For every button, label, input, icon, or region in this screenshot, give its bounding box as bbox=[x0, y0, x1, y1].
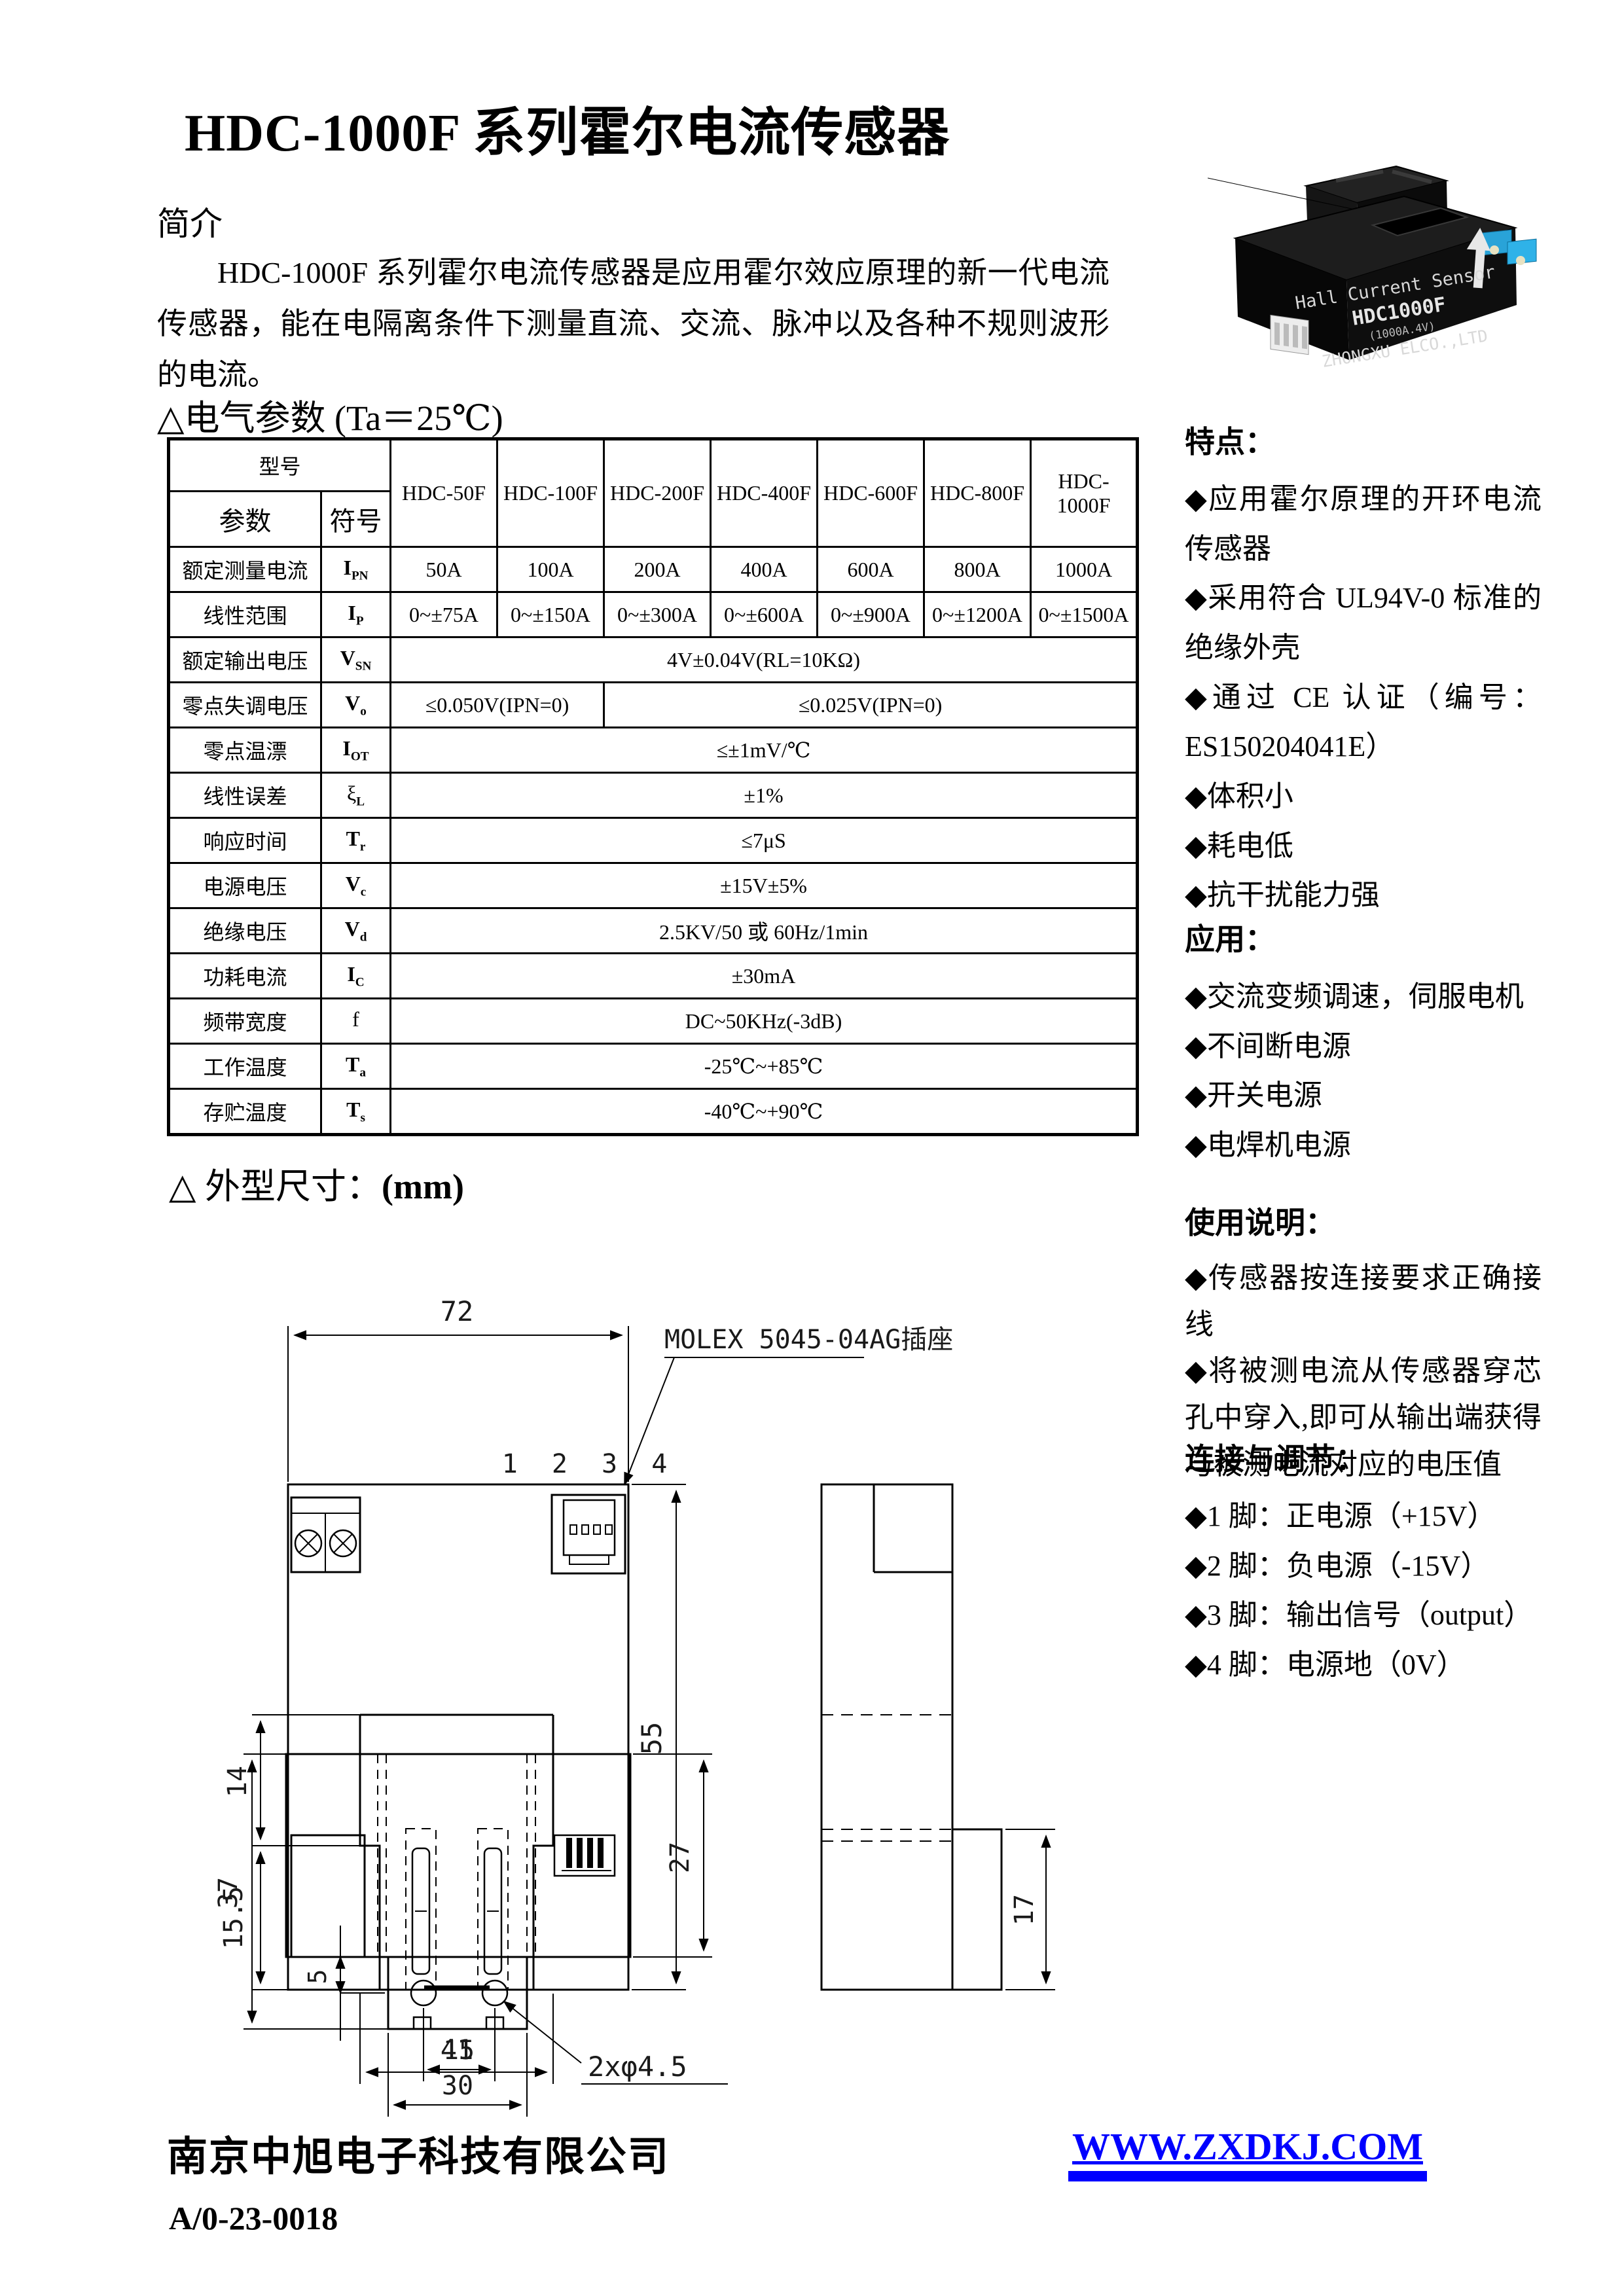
dim-30-label: 30 bbox=[442, 2071, 473, 2101]
param-name: 额定测量电流 bbox=[169, 547, 321, 592]
dim-5-label: 5 bbox=[303, 1969, 332, 1984]
param-symbol: VSN bbox=[321, 637, 391, 683]
usage-heading: 使用说明： bbox=[1185, 1199, 1542, 1248]
param-name: 零点失调电压 bbox=[169, 683, 321, 728]
table-row: 响应时间 Tr ≤7μS bbox=[169, 818, 1138, 863]
param-value: ≤0.050V(IPN=0) bbox=[391, 683, 604, 728]
outline-drawing: 72 1 2 3 4 MOLEX 5045-04AG插座 55 14 15.5 … bbox=[157, 1211, 1191, 2125]
param-name: 线性范围 bbox=[169, 592, 321, 637]
dims-heading-unit: (mm) bbox=[382, 1167, 464, 1206]
sidebar-connection: 连接与调节： ◆1 脚：正电源（+15V） ◆2 脚：负电源（-15V） ◆3 … bbox=[1185, 1433, 1542, 1690]
param-value: 50A bbox=[391, 547, 497, 592]
param-value: -25℃~+85℃ bbox=[391, 1044, 1138, 1089]
table-row: 零点温漂 IOT ≤±1mV/℃ bbox=[169, 728, 1138, 773]
param-name: 额定输出电压 bbox=[169, 637, 321, 683]
param-symbol: Ta bbox=[321, 1044, 391, 1089]
dim-55-label: 55 bbox=[636, 1722, 668, 1755]
connector-footprint-icon bbox=[554, 1835, 615, 1876]
param-name: 存贮温度 bbox=[169, 1089, 321, 1135]
datasheet-page: HDC-1000F 系列霍尔电流传感器 bbox=[0, 0, 1624, 2296]
param-value: 0~±1200A bbox=[924, 592, 1031, 637]
table-row: 频带宽度 f DC~50KHz(-3dB) bbox=[169, 999, 1138, 1044]
dims-heading: △ 外型尺寸：(mm) bbox=[169, 1157, 464, 1209]
param-symbol: IOT bbox=[321, 728, 391, 773]
dim-27-label: 27 bbox=[665, 1842, 695, 1873]
pin-numbers-label: 1 2 3 4 bbox=[502, 1449, 677, 1479]
param-value: ≤7μS bbox=[391, 818, 1138, 863]
features-heading: 特点： bbox=[1185, 416, 1542, 468]
application-item: ◆交流变频调速，伺服电机 bbox=[1185, 972, 1542, 1022]
model-header: HDC-600F bbox=[818, 439, 924, 547]
param-name: 工作温度 bbox=[169, 1044, 321, 1089]
params-heading: △电气参数 (Ta＝25℃) bbox=[157, 389, 503, 440]
intro-paragraph: HDC-1000F 系列霍尔电流传感器是应用霍尔效应原理的新一代电流传感器，能在… bbox=[157, 247, 1110, 401]
feature-item: ◆耗电低 bbox=[1185, 821, 1542, 871]
dim-17-label: 17 bbox=[1009, 1894, 1039, 1926]
pin-item: ◆1 脚：正电源（+15V） bbox=[1185, 1492, 1542, 1541]
applications-heading: 应用： bbox=[1185, 914, 1542, 965]
application-item: ◆开关电源 bbox=[1185, 1071, 1542, 1121]
molex-connector-icon bbox=[552, 1495, 625, 1573]
application-item: ◆电焊机电源 bbox=[1185, 1121, 1542, 1170]
dim-14-label: 14 bbox=[223, 1766, 253, 1797]
param-name: 线性误差 bbox=[169, 773, 321, 818]
page-title: HDC-1000F 系列霍尔电流传感器 bbox=[185, 90, 950, 166]
param-value: 200A bbox=[604, 547, 711, 592]
pin-item: ◆2 脚：负电源（-15V） bbox=[1185, 1541, 1542, 1591]
param-value: ±30mA bbox=[391, 954, 1138, 999]
table-row: 零点失调电压 Vo ≤0.050V(IPN=0) ≤0.025V(IPN=0) bbox=[169, 683, 1138, 728]
sensor-body-illustration: Hall Current Sensor HDC1000F (1000A.4V) … bbox=[1208, 166, 1536, 371]
param-name: 响应时间 bbox=[169, 818, 321, 863]
feature-item: ◆应用霍尔原理的开环电流传感器 bbox=[1185, 475, 1542, 573]
param-name: 电源电压 bbox=[169, 863, 321, 908]
param-symbol: ξL bbox=[321, 773, 391, 818]
table-row: 额定输出电压 VSN 4V±0.04V(RL=10KΩ) bbox=[169, 637, 1138, 683]
feature-item: ◆通过 CE 认证（编号：ES150204041E） bbox=[1185, 673, 1542, 772]
dim-15-label: 15 bbox=[443, 2036, 475, 2066]
model-header: HDC-400F bbox=[711, 439, 818, 547]
mounting-hole-icon bbox=[482, 1981, 507, 2005]
electrical-params-table: 型号 HDC-50F HDC-100F HDC-200F HDC-400F HD… bbox=[167, 437, 1139, 1136]
feature-item: ◆抗干扰能力强 bbox=[1185, 870, 1542, 920]
param-symbol: Vd bbox=[321, 908, 391, 954]
param-symbol: Vc bbox=[321, 863, 391, 908]
param-symbol: Vo bbox=[321, 683, 391, 728]
param-value: 2.5KV/50 或 60Hz/1min bbox=[391, 908, 1138, 954]
param-symbol: f bbox=[321, 999, 391, 1044]
param-symbol: IPN bbox=[321, 547, 391, 592]
param-symbol: Ts bbox=[321, 1089, 391, 1135]
param-value: ±1% bbox=[391, 773, 1138, 818]
sidebar-features: 特点： ◆应用霍尔原理的开环电流传感器 ◆采用符合 UL94V-0 标准的绝缘外… bbox=[1185, 416, 1542, 920]
usage-item: ◆传感器按连接要求正确接线 bbox=[1185, 1255, 1542, 1348]
table-row: 功耗电流 IC ±30mA bbox=[169, 954, 1138, 999]
table-row: 线性范围 IP 0~±75A 0~±150A 0~±300A 0~±600A 0… bbox=[169, 592, 1138, 637]
model-header: HDC-1000F bbox=[1031, 439, 1138, 547]
param-name: 绝缘电压 bbox=[169, 908, 321, 954]
param-name: 频带宽度 bbox=[169, 999, 321, 1044]
param-name: 零点温漂 bbox=[169, 728, 321, 773]
param-symbol: IP bbox=[321, 592, 391, 637]
model-header: HDC-800F bbox=[924, 439, 1031, 547]
param-symbol: IC bbox=[321, 954, 391, 999]
connector-icon bbox=[1271, 315, 1308, 354]
corner-param-label: 参数 bbox=[169, 492, 321, 547]
param-value: 4V±0.04V(RL=10KΩ) bbox=[391, 637, 1138, 683]
connection-heading: 连接与调节： bbox=[1185, 1433, 1542, 1485]
param-symbol: Tr bbox=[321, 818, 391, 863]
application-item: ◆不间断电源 bbox=[1185, 1022, 1542, 1071]
table-row: 存贮温度 Ts -40℃~+90℃ bbox=[169, 1089, 1138, 1135]
footer-doc-number: A/0-23-0018 bbox=[169, 2199, 338, 2237]
corner-model-label: 型号 bbox=[169, 439, 391, 492]
param-value: 800A bbox=[924, 547, 1031, 592]
pin-item: ◆3 脚：输出信号（output） bbox=[1185, 1590, 1542, 1640]
param-name: 功耗电流 bbox=[169, 954, 321, 999]
param-value: ≤±1mV/℃ bbox=[391, 728, 1138, 773]
pin-item: ◆4 脚：电源地（0V） bbox=[1185, 1640, 1542, 1690]
feature-item: ◆采用符合 UL94V-0 标准的绝缘外壳 bbox=[1185, 573, 1542, 672]
product-photo: Hall Current Sensor HDC1000F (1000A.4V) … bbox=[1208, 152, 1545, 371]
footer-website-link[interactable]: WWW.ZXDKJ.COM bbox=[1068, 2125, 1427, 2181]
feature-item: ◆体积小 bbox=[1185, 772, 1542, 821]
model-header: HDC-50F bbox=[391, 439, 497, 547]
param-value: 1000A bbox=[1031, 547, 1138, 592]
table-row: 线性误差 ξL ±1% bbox=[169, 773, 1138, 818]
sidebar-applications: 应用： ◆交流变频调速，伺服电机 ◆不间断电源 ◆开关电源 ◆电焊机电源 bbox=[1185, 914, 1542, 1170]
model-header: HDC-200F bbox=[604, 439, 711, 547]
param-value: 0~±75A bbox=[391, 592, 497, 637]
param-value: 0~±1500A bbox=[1031, 592, 1138, 637]
param-value: 0~±900A bbox=[818, 592, 924, 637]
dim-37-label: 37 bbox=[213, 1877, 244, 1909]
mounting-hole-icon bbox=[411, 1981, 436, 2005]
param-value: 400A bbox=[711, 547, 818, 592]
intro-heading: 简介 bbox=[157, 198, 223, 245]
param-value: -40℃~+90℃ bbox=[391, 1089, 1138, 1135]
param-value: 100A bbox=[497, 547, 604, 592]
param-value: 0~±600A bbox=[711, 592, 818, 637]
table-row: 电源电压 Vc ±15V±5% bbox=[169, 863, 1138, 908]
front-view bbox=[252, 1326, 864, 2084]
param-value: ±15V±5% bbox=[391, 863, 1138, 908]
param-value: DC~50KHz(-3dB) bbox=[391, 999, 1138, 1044]
footer-company: 南京中旭电子科技有限公司 bbox=[167, 2123, 670, 2182]
model-header: HDC-100F bbox=[497, 439, 604, 547]
param-value: 0~±150A bbox=[497, 592, 604, 637]
table-header-row-1: 型号 HDC-50F HDC-100F HDC-200F HDC-400F HD… bbox=[169, 439, 1138, 492]
corner-symbol-label: 符号 bbox=[321, 492, 391, 547]
screw-terminal-icon bbox=[291, 1498, 360, 1572]
table-row: 绝缘电压 Vd 2.5KV/50 或 60Hz/1min bbox=[169, 908, 1138, 954]
holes-callout-label: 2xφ4.5 bbox=[588, 2051, 687, 2083]
molex-callout-label: MOLEX 5045-04AG插座 bbox=[664, 1325, 953, 1355]
table-row: 额定测量电流 IPN 50A 100A 200A 400A 600A 800A … bbox=[169, 547, 1138, 592]
table-row: 工作温度 Ta -25℃~+85℃ bbox=[169, 1044, 1138, 1089]
param-value: 0~±300A bbox=[604, 592, 711, 637]
param-value: 600A bbox=[818, 547, 924, 592]
dim-72-label: 72 bbox=[441, 1295, 474, 1327]
param-value: ≤0.025V(IPN=0) bbox=[604, 683, 1138, 728]
dims-heading-text: △ 外型尺寸： bbox=[169, 1167, 382, 1206]
